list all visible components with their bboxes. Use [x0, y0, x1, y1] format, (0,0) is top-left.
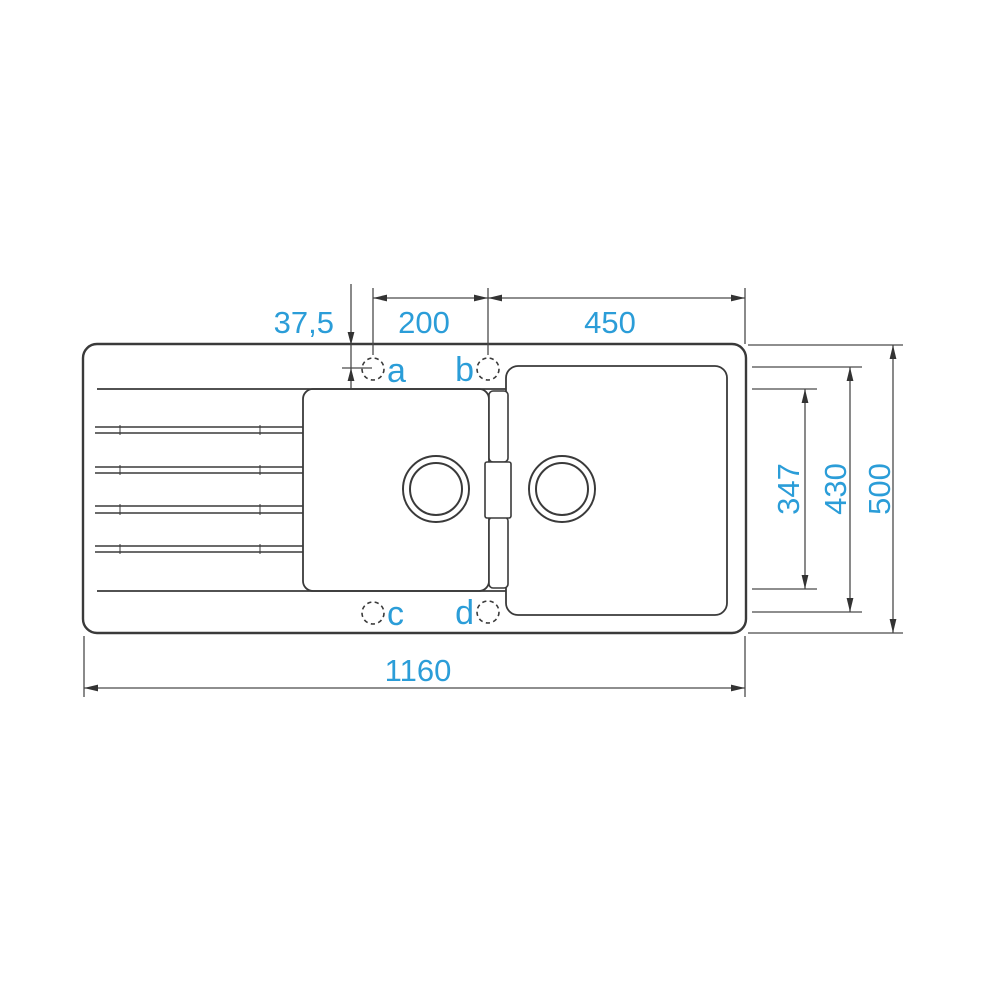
dimension-labels: 37,5 200 450 347 430 500 1160 a b c d [274, 305, 897, 688]
tap-hole-d [477, 601, 499, 623]
dim-430-label: 430 [818, 463, 853, 515]
tap-hole-a-label: a [387, 352, 406, 390]
tap-hole-c-label: c [387, 595, 404, 633]
dim-450-label: 450 [584, 305, 636, 340]
main-bowl-outline [506, 366, 727, 615]
divider-bottom-segment [489, 517, 508, 588]
tap-holes [362, 358, 499, 624]
tap-hole-a [362, 358, 384, 380]
drain-outer-circle [529, 456, 595, 522]
drainer-groove-ticks [120, 425, 260, 554]
tap-hole-c [362, 602, 384, 624]
tap-hole-b [477, 358, 499, 380]
dim-37-5-label: 37,5 [274, 305, 334, 340]
sink-outer-outline [83, 344, 746, 633]
sink-technical-drawing-page: 37,5 200 450 347 430 500 1160 a b c d [0, 0, 992, 992]
tap-hole-b-label: b [455, 351, 474, 389]
dim-347-label: 347 [771, 463, 806, 515]
sink-technical-drawing: 37,5 200 450 347 430 500 1160 a b c d [0, 0, 992, 992]
drainer-grooves [95, 425, 303, 554]
main-bowl-drain [529, 456, 595, 522]
half-bowl-drain [403, 456, 469, 522]
drain-inner-circle [536, 463, 588, 515]
bowl-divider [485, 391, 511, 588]
drain-outer-circle [403, 456, 469, 522]
divider-top-segment [489, 391, 508, 462]
drain-inner-circle [410, 463, 462, 515]
sink-body [83, 344, 746, 633]
divider-overflow-segment [485, 462, 511, 518]
dim-1160-label: 1160 [385, 653, 452, 688]
tap-hole-d-label: d [455, 594, 474, 632]
dim-500-label: 500 [862, 463, 897, 515]
dim-200-label: 200 [398, 305, 450, 340]
